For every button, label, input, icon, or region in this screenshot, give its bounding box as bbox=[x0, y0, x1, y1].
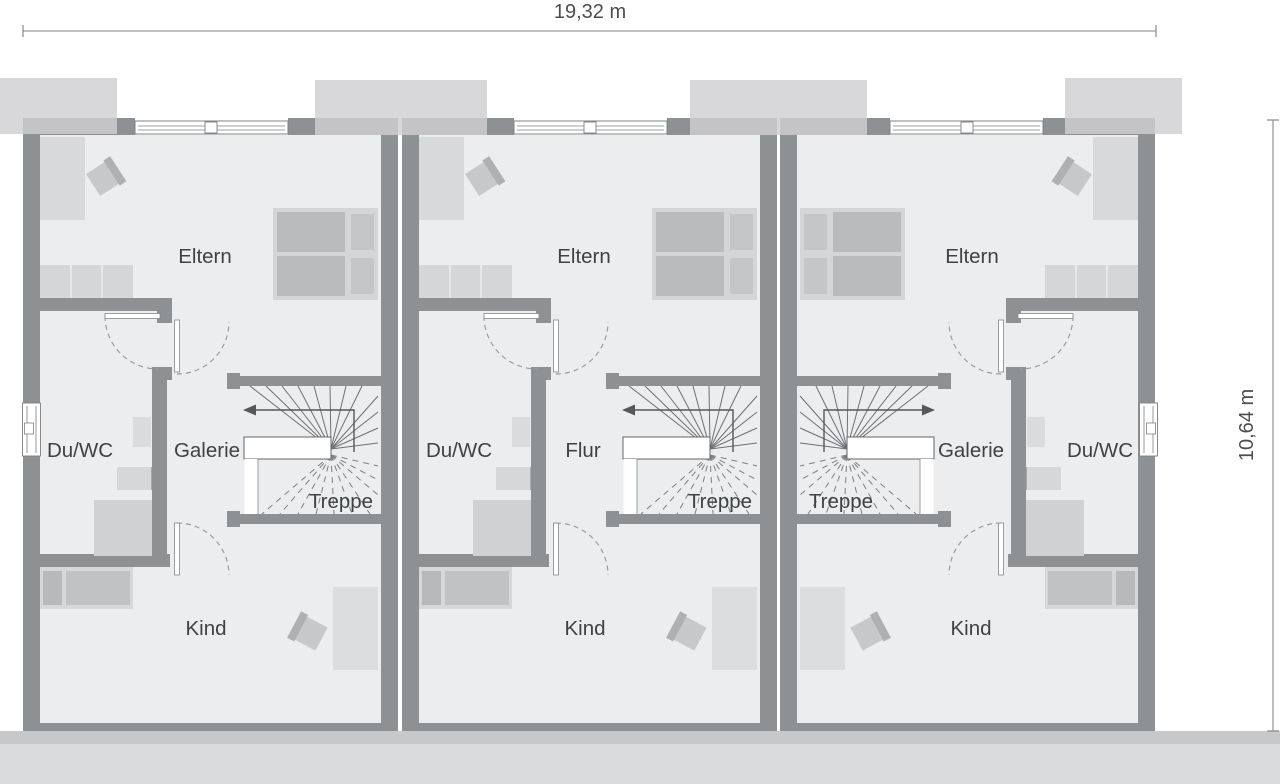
floor-plan-canvas: 19,32 m 10,64 m Eltern Du/WC Galerie Tre… bbox=[0, 0, 1280, 784]
dimension-top: 19,32 m bbox=[23, 1, 1156, 37]
room-label-treppe-3: Treppe bbox=[809, 490, 873, 513]
dormer-3 bbox=[690, 80, 867, 135]
room-label-eltern-2: Eltern bbox=[557, 245, 611, 268]
dimension-height-label: 10,64 m bbox=[1236, 389, 1258, 461]
room-label-galerie-1: Galerie bbox=[174, 439, 240, 462]
window-side-left bbox=[23, 403, 41, 456]
room-label-treppe-2: Treppe bbox=[688, 490, 752, 513]
room-label-eltern-3: Eltern bbox=[945, 245, 999, 268]
ground bbox=[0, 731, 1280, 784]
dormer-1 bbox=[0, 78, 117, 134]
terrace-strip bbox=[0, 731, 1280, 744]
dimension-right: 10,64 m bbox=[1236, 120, 1279, 731]
room-label-duwc-3: Du/WC bbox=[1067, 439, 1133, 462]
ground-strip bbox=[0, 744, 1280, 784]
room-label-duwc-2: Du/WC bbox=[426, 439, 492, 462]
dormer-4 bbox=[1065, 78, 1182, 134]
room-label-kind-3: Kind bbox=[950, 617, 991, 640]
room-label-treppe-1: Treppe bbox=[309, 490, 373, 513]
room-label-galerie-3: Galerie bbox=[938, 439, 1004, 462]
room-label-flur-2: Flur bbox=[565, 439, 600, 462]
floor-plan: 19,32 m 10,64 m Eltern Du/WC Galerie Tre… bbox=[0, 0, 1280, 784]
room-label-eltern-1: Eltern bbox=[178, 245, 232, 268]
dimension-width-label: 19,32 m bbox=[554, 1, 626, 23]
room-label-kind-1: Kind bbox=[185, 617, 226, 640]
dormer-2 bbox=[315, 80, 487, 135]
room-label-kind-2: Kind bbox=[564, 617, 605, 640]
window-side-right bbox=[1140, 403, 1158, 456]
room-label-duwc-1: Du/WC bbox=[47, 439, 113, 462]
